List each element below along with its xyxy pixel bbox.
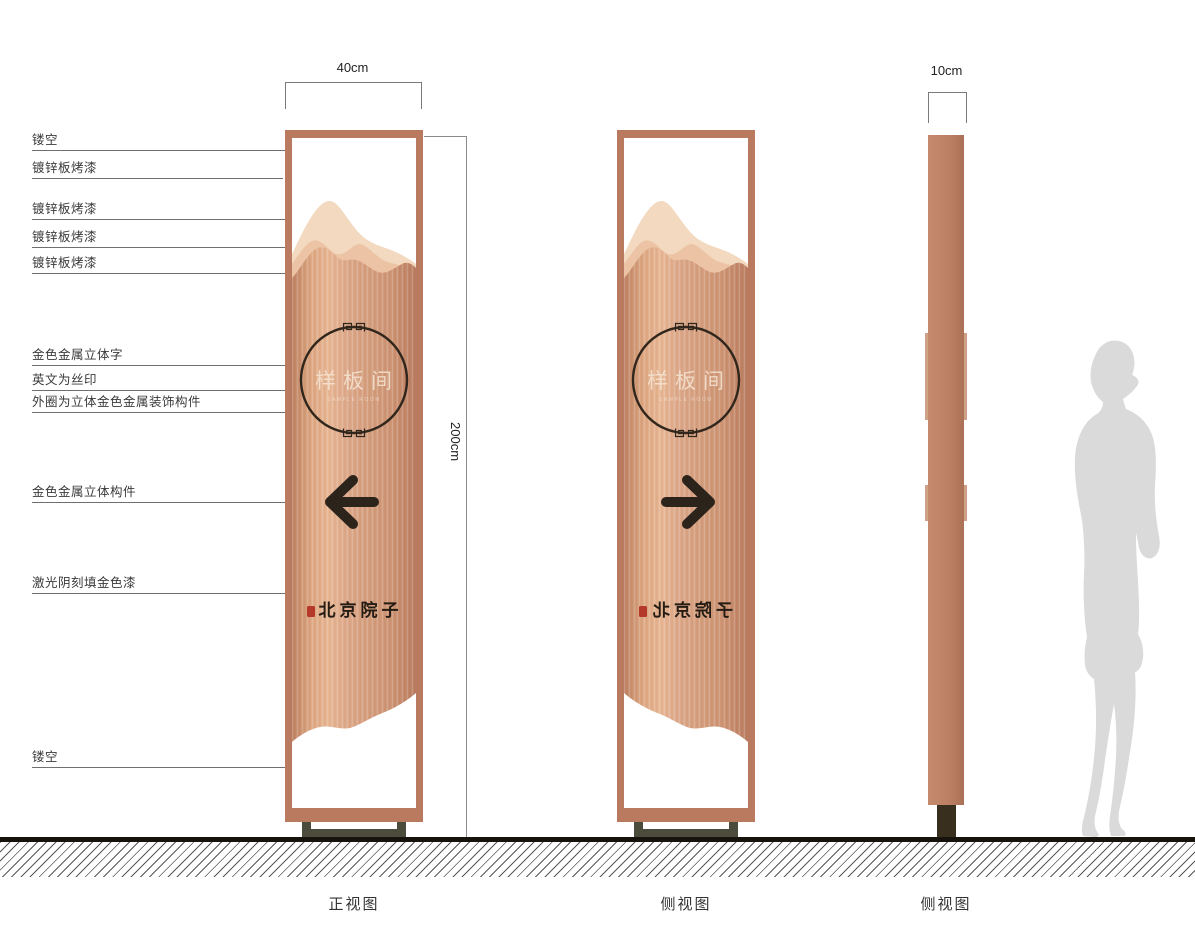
annotation-label: 激光阴刻填金色漆 xyxy=(32,576,136,590)
annotation-hollow-top: 镂空 xyxy=(32,133,305,151)
dim-height-label: 200cm xyxy=(448,422,463,464)
annotation-label: 金色金属立体构件 xyxy=(32,485,136,499)
brand-calligraphy: 北京院子 xyxy=(292,596,416,622)
dim-height-tick xyxy=(424,136,466,137)
seal-icon xyxy=(307,606,315,617)
annotation-label: 金色金属立体字 xyxy=(32,348,123,362)
panel-side-profile xyxy=(928,135,964,805)
dim-profile-width: 10cm xyxy=(928,63,965,78)
panel-side-artwork: 样板间 SAMPLE ROOM xyxy=(624,138,748,808)
annotation-label: 镀锌板烤漆 xyxy=(32,161,97,175)
profile-foot xyxy=(937,805,956,838)
panel-side-view: 样板间 SAMPLE ROOM 北京院子 xyxy=(617,130,755,822)
circle-english-subtitle: SAMPLE ROOM xyxy=(659,397,713,403)
dim-profile-width-bracket xyxy=(928,92,967,123)
circle-english-subtitle: SAMPLE ROOM xyxy=(327,397,381,403)
seal-icon xyxy=(639,606,647,617)
signage-spec-sheet: 镂空 镀锌板烤漆 镀锌板烤漆 镀锌板烤漆 镀锌板烤漆 金色金属立体字 英文为丝印… xyxy=(0,0,1195,927)
brand-calligraphy-mirrored: 北京院子 xyxy=(624,596,748,622)
annotation-galvanized-4: 镀锌板烤漆 xyxy=(32,256,290,274)
annotation-label: 镀锌板烤漆 xyxy=(32,202,97,216)
caption-front-view: 正视图 xyxy=(328,893,379,914)
annotation-galvanized-3: 镀锌板烤漆 xyxy=(32,230,293,248)
annotation-gold-ring: 外圈为立体金色金属装饰构件 xyxy=(32,395,316,413)
copper-body xyxy=(624,247,748,742)
annotation-label: 镂空 xyxy=(32,133,58,147)
annotation-label: 外圈为立体金色金属装饰构件 xyxy=(32,395,201,409)
annotation-laser-engraved: 激光阴刻填金色漆 xyxy=(32,576,300,594)
brand-text: 北京院子 xyxy=(318,601,402,621)
annotation-label: 镀锌板烤漆 xyxy=(32,230,97,244)
caption-side-profile: 侧视图 xyxy=(920,893,971,914)
caption-side-view: 侧视图 xyxy=(660,893,711,914)
circle-room-text: 样板间 xyxy=(315,369,399,393)
circle-room-text: 样板间 xyxy=(647,369,731,393)
ground-hatch xyxy=(0,842,1195,877)
annotation-galvanized-2: 镀锌板烤漆 xyxy=(32,202,298,220)
annotation-hollow-bottom: 镂空 xyxy=(32,750,302,768)
annotation-galvanized-1: 镀锌板烤漆 xyxy=(32,161,283,179)
annotation-label: 镀锌板烤漆 xyxy=(32,256,97,270)
dim-front-width: 40cm xyxy=(285,60,420,75)
front-view-stand xyxy=(302,822,406,838)
panel-front-view: 样板间 SAMPLE ROOM 北京院子 xyxy=(285,130,423,822)
annotation-label: 镂空 xyxy=(32,750,58,764)
annotation-label: 英文为丝印 xyxy=(32,373,97,387)
dim-front-width-bracket xyxy=(285,82,422,109)
panel-front-artwork: 样板间 SAMPLE ROOM xyxy=(292,138,416,808)
brand-text: 北京院子 xyxy=(650,601,734,621)
human-scale-silhouette xyxy=(1040,338,1168,838)
copper-body xyxy=(292,247,416,742)
dim-height-line xyxy=(466,136,467,837)
side-view-stand xyxy=(634,822,738,838)
